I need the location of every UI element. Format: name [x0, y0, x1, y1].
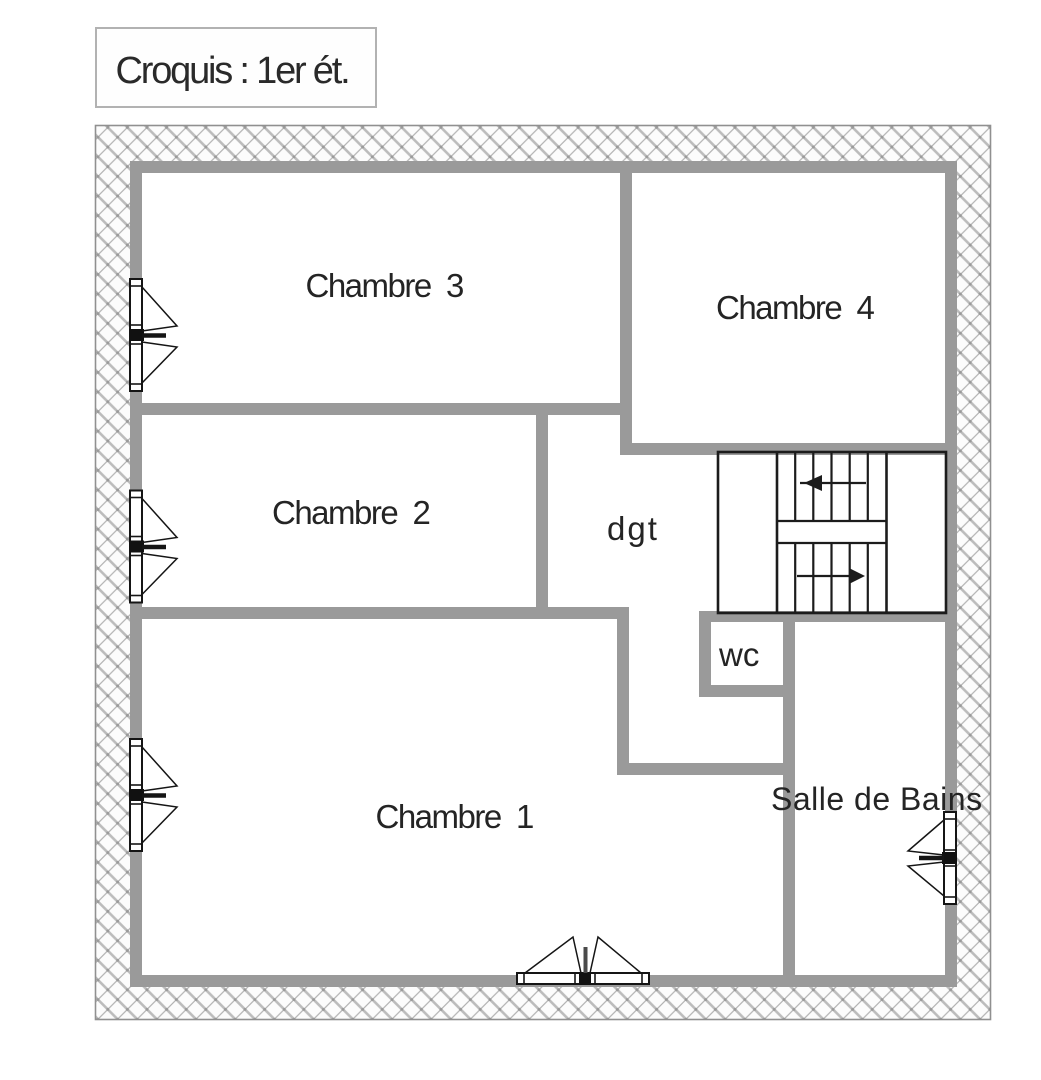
- svg-text:Chambre 4: Chambre 4: [716, 289, 875, 326]
- svg-text:Chambre 1: Chambre 1: [376, 798, 534, 835]
- svg-text:Chambre 3: Chambre 3: [306, 267, 464, 304]
- svg-text:wc: wc: [718, 636, 759, 673]
- svg-text:Salle de Bains: Salle de Bains: [771, 781, 983, 817]
- svg-text:dgt: dgt: [607, 510, 659, 547]
- svg-text:Chambre 2: Chambre 2: [272, 494, 430, 531]
